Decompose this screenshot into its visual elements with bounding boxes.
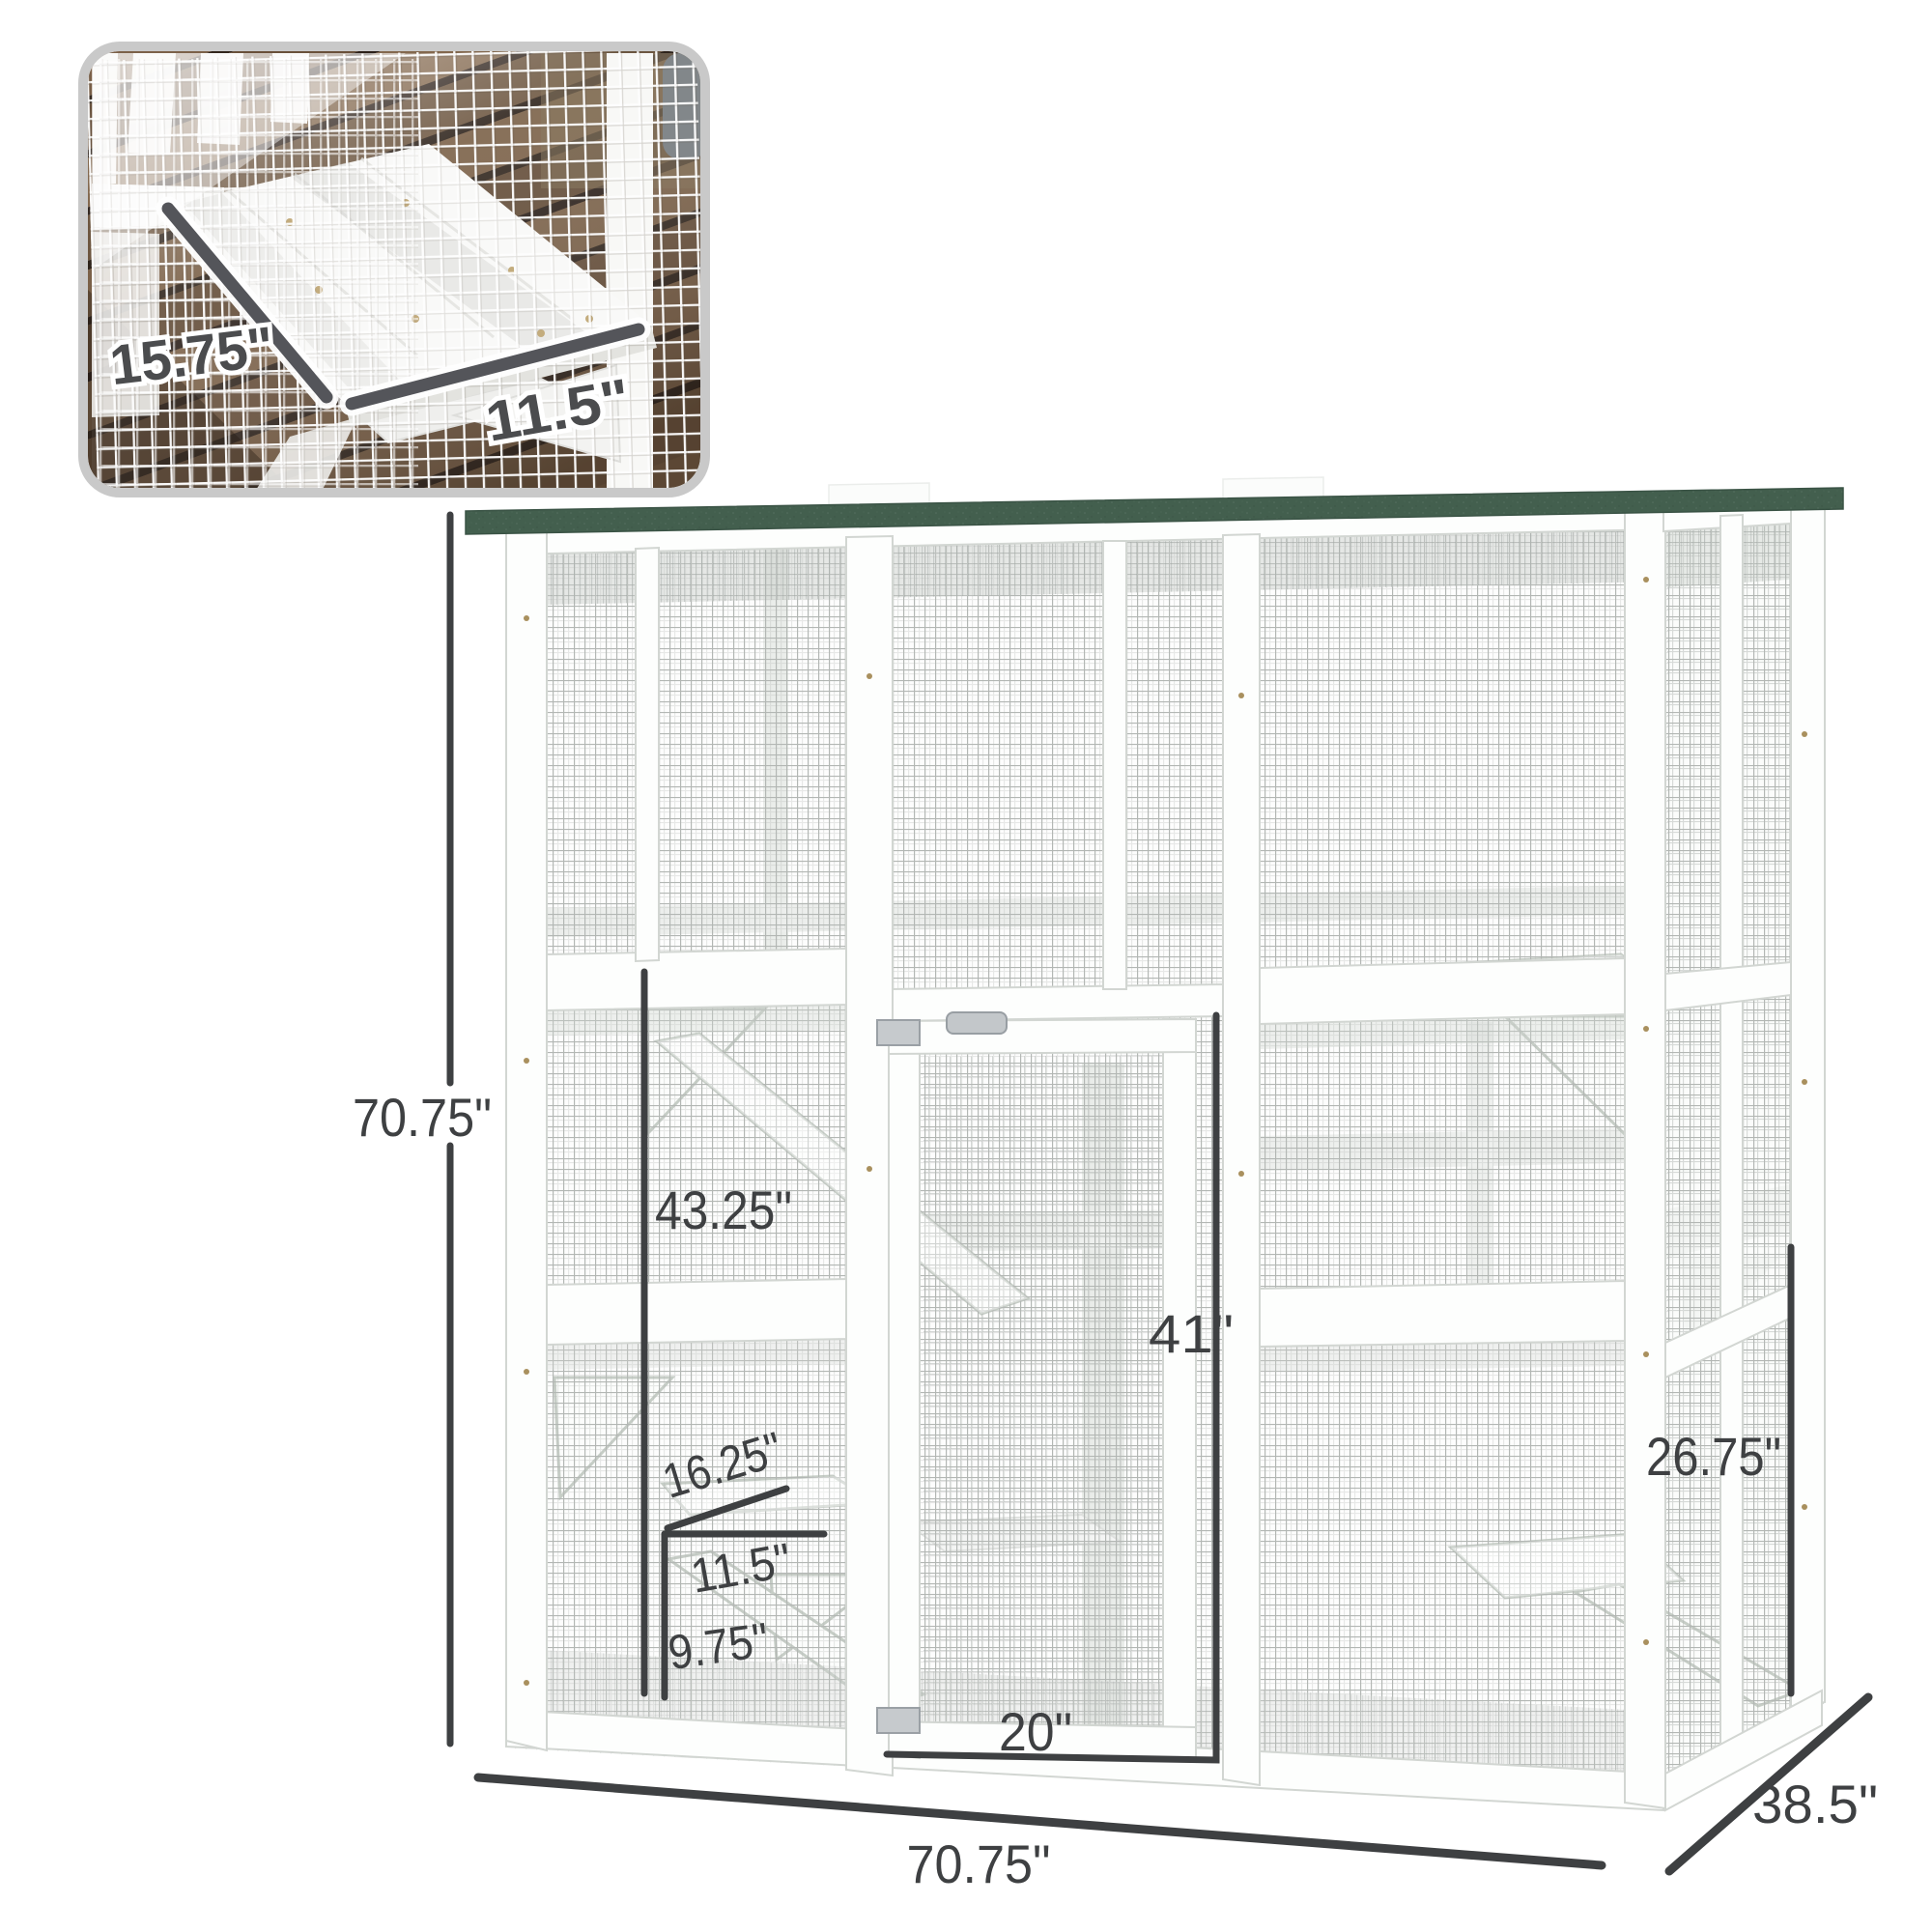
svg-text:43.25": 43.25" — [655, 1179, 792, 1240]
svg-text:26.75": 26.75" — [1646, 1426, 1781, 1487]
svg-text:41": 41" — [1149, 1303, 1234, 1364]
svg-text:70.75": 70.75" — [907, 1833, 1051, 1894]
svg-text:38.5": 38.5" — [1752, 1774, 1878, 1834]
svg-text:20": 20" — [999, 1701, 1072, 1762]
svg-text:70.75": 70.75" — [353, 1087, 492, 1148]
